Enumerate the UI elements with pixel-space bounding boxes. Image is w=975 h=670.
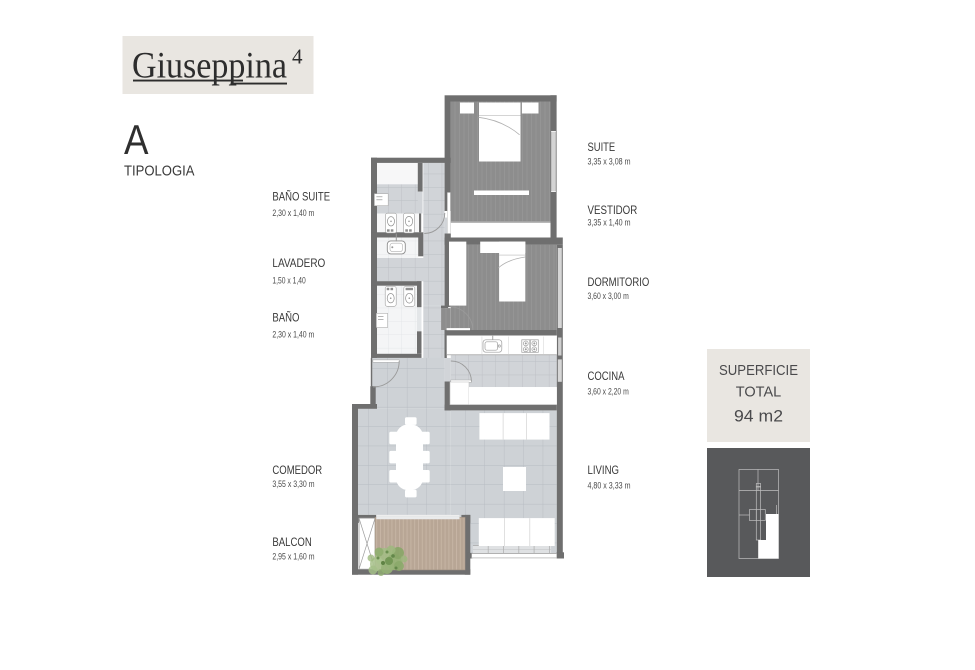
svg-text:A: A [124, 116, 149, 163]
svg-text:LIVING: LIVING [588, 463, 620, 477]
svg-text:2,30 x 1,40 m: 2,30 x 1,40 m [272, 208, 314, 218]
svg-text:VESTIDOR: VESTIDOR [588, 203, 638, 217]
svg-text:3,55 x 3,30 m: 3,55 x 3,30 m [272, 479, 314, 489]
svg-text:4: 4 [292, 45, 303, 69]
svg-text:3,35 x 3,08 m: 3,35 x 3,08 m [588, 156, 631, 166]
svg-text:94 m2: 94 m2 [734, 408, 783, 426]
svg-text:TIPOLOGIA: TIPOLOGIA [124, 163, 195, 180]
svg-text:DORMITORIO: DORMITORIO [588, 275, 650, 289]
svg-text:3,60 x 2,20 m: 3,60 x 2,20 m [588, 386, 629, 396]
svg-text:4,80 x 3,33 m: 4,80 x 3,33 m [588, 481, 631, 491]
svg-text:SUPERFICIE: SUPERFICIE [719, 362, 798, 379]
svg-text:BAÑO: BAÑO [272, 311, 299, 325]
svg-text:SUITE: SUITE [588, 140, 616, 154]
svg-text:COCINA: COCINA [588, 369, 625, 383]
svg-text:COMEDOR: COMEDOR [272, 463, 322, 477]
svg-text:3,60 x 3,00 m: 3,60 x 3,00 m [588, 291, 629, 301]
svg-text:1,50 x 1,40: 1,50 x 1,40 [272, 275, 305, 285]
svg-text:LAVADERO: LAVADERO [272, 256, 325, 270]
svg-text:TOTAL: TOTAL [736, 384, 782, 401]
svg-text:2,95 x 1,60 m: 2,95 x 1,60 m [272, 552, 314, 562]
svg-text:2,30 x 1,40 m: 2,30 x 1,40 m [272, 330, 314, 340]
svg-text:3,35 x 1,40 m: 3,35 x 1,40 m [588, 218, 631, 228]
svg-text:BAÑO SUITE: BAÑO SUITE [272, 189, 330, 203]
svg-text:BALCON: BALCON [272, 535, 311, 549]
